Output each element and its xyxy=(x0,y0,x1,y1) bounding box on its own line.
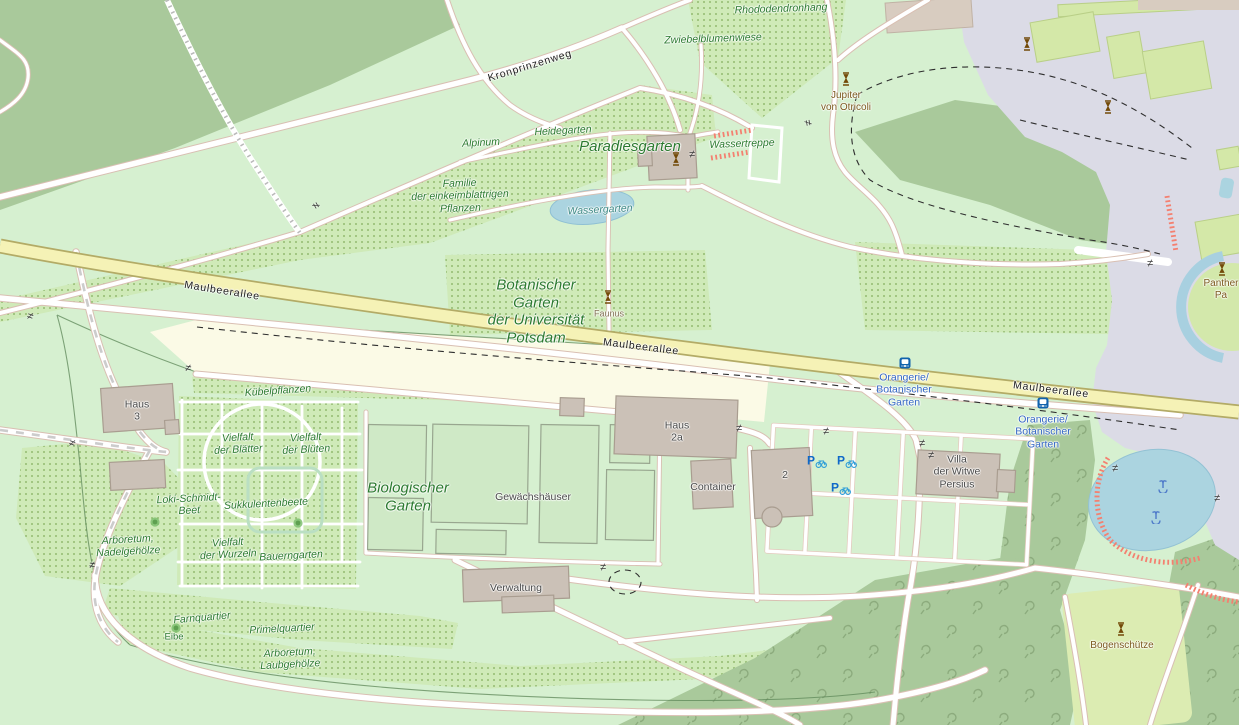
statue-icon xyxy=(603,290,613,305)
label-wassergarten: Wassergarten xyxy=(567,202,633,218)
gate-icon: ≠ xyxy=(67,438,76,450)
label-building-2: 2 xyxy=(782,469,788,481)
label-haus-2a: Haus 2a xyxy=(665,420,690,445)
label-haus-3: Haus 3 xyxy=(125,399,150,424)
label-paradiesgarten: Paradiesgarten xyxy=(579,138,681,156)
fountain-icon xyxy=(1156,479,1171,493)
label-kuebelpflanzen: Kübelpflanzen xyxy=(244,383,311,400)
bike-icon: P xyxy=(831,481,851,496)
label-arboretum-nadelgehoelze: Arboretum, Nadelgehölze xyxy=(95,532,160,560)
gate-icon: ≠ xyxy=(309,201,322,212)
svg-text:P: P xyxy=(837,454,845,468)
label-loki-schmidt-beet: Loki-Schmidt- Beet xyxy=(156,491,221,519)
label-maulbeerallee-mid: Maulbeerallee xyxy=(602,336,679,358)
gate-icon: ≠ xyxy=(600,563,606,574)
label-vielfalt-der-blaetter: Vielfalt der Blätter xyxy=(213,430,263,457)
label-faunus: Faunus xyxy=(594,309,624,320)
map-canvas[interactable]: RhododendronhangZwiebelblumenwieseKronpr… xyxy=(0,0,1239,725)
map-overlay: RhododendronhangZwiebelblumenwieseKronpr… xyxy=(0,0,1239,725)
label-maulbeerallee-west: Maulbeerallee xyxy=(183,279,260,303)
label-primelquartier: Primelquartier xyxy=(249,621,315,637)
gate-icon: ≠ xyxy=(928,451,934,462)
statue-icon xyxy=(1116,622,1126,637)
gate-icon: ≠ xyxy=(1112,464,1118,475)
bike-icon: P xyxy=(837,454,857,469)
tree-icon xyxy=(171,623,182,634)
statue-icon xyxy=(1103,100,1113,115)
gate-icon: ≠ xyxy=(919,439,925,450)
label-villa-der-witwe-persius: Villa der Witwe Persius xyxy=(934,453,981,490)
label-maulbeerallee-east: Maulbeerallee xyxy=(1012,379,1089,401)
tree-icon xyxy=(293,518,304,529)
gate-icon: ≠ xyxy=(1214,494,1220,505)
statue-icon xyxy=(1022,37,1032,52)
label-rhododendronhang: Rhododendronhang xyxy=(734,1,827,17)
label-familie-einkeimblattrige: Familie der einkeimblattrigen Pflanzen xyxy=(411,176,510,217)
label-gewaechshaeuser: Gewächshäuser xyxy=(495,491,571,503)
bus-icon xyxy=(1037,397,1049,409)
label-container: Container xyxy=(690,481,736,493)
statue-icon xyxy=(841,72,851,87)
gate-icon: ≠ xyxy=(823,427,829,438)
label-botanischer-garten: Botanischer Garten der Universität Potsd… xyxy=(488,277,585,348)
gate-icon: ≠ xyxy=(88,560,96,572)
fountain-icon xyxy=(1149,510,1164,524)
statue-icon xyxy=(1217,262,1227,277)
gate-icon: ≠ xyxy=(25,311,34,323)
statue-icon xyxy=(671,152,681,167)
label-kronprinzenweg: Kronprinzenweg xyxy=(487,47,574,84)
gate-icon: ≠ xyxy=(184,363,192,375)
gate-icon: ≠ xyxy=(1147,259,1153,270)
label-bauerngarten: Bauerngarten xyxy=(259,548,323,564)
label-eibe: Eibe xyxy=(164,631,183,642)
svg-text:P: P xyxy=(807,454,815,468)
label-biologischer-garten: Biologischer Garten xyxy=(367,479,449,514)
label-verwaltung: Verwaltung xyxy=(490,582,542,594)
label-sukkulentenbeete: Sukkulentenbeete xyxy=(224,496,309,513)
bus-icon xyxy=(899,357,911,369)
label-zwiebelblumenwiese: Zwiebelblumenwiese xyxy=(664,31,762,47)
gate-icon: ≠ xyxy=(736,424,742,435)
label-orangerie-stop-north: Orangerie/ Botanischer Garten xyxy=(876,371,931,408)
label-alpinum: Alpinum xyxy=(462,136,501,150)
label-vielfalt-der-wurzeln: Vielfalt der Wurzeln xyxy=(199,535,257,563)
bike-icon: P xyxy=(807,454,827,469)
label-jupiter-von-otricoli: Jupiter von Otricoli xyxy=(821,90,871,114)
label-wassertreppe: Wassertreppe xyxy=(709,137,775,152)
label-vielfalt-der-blueten: Vielfalt der Blüten xyxy=(281,430,330,457)
tree-icon xyxy=(150,517,161,528)
label-arboretum-laubgehoelze: Arboretum, Laubgehölze xyxy=(259,645,320,673)
label-heidegarten: Heidegarten xyxy=(534,123,592,138)
label-bogenschuetze: Bogenschütze xyxy=(1090,640,1153,652)
gate-icon: ≠ xyxy=(801,119,813,127)
svg-text:P: P xyxy=(831,481,839,495)
label-farnquartier: Farnquartier xyxy=(173,609,231,626)
gate-icon: ≠ xyxy=(689,150,695,161)
label-panther: Panther Pa xyxy=(1203,278,1238,302)
label-orangerie-stop-south: Orangerie/ Botanischer Garten xyxy=(1015,413,1070,450)
